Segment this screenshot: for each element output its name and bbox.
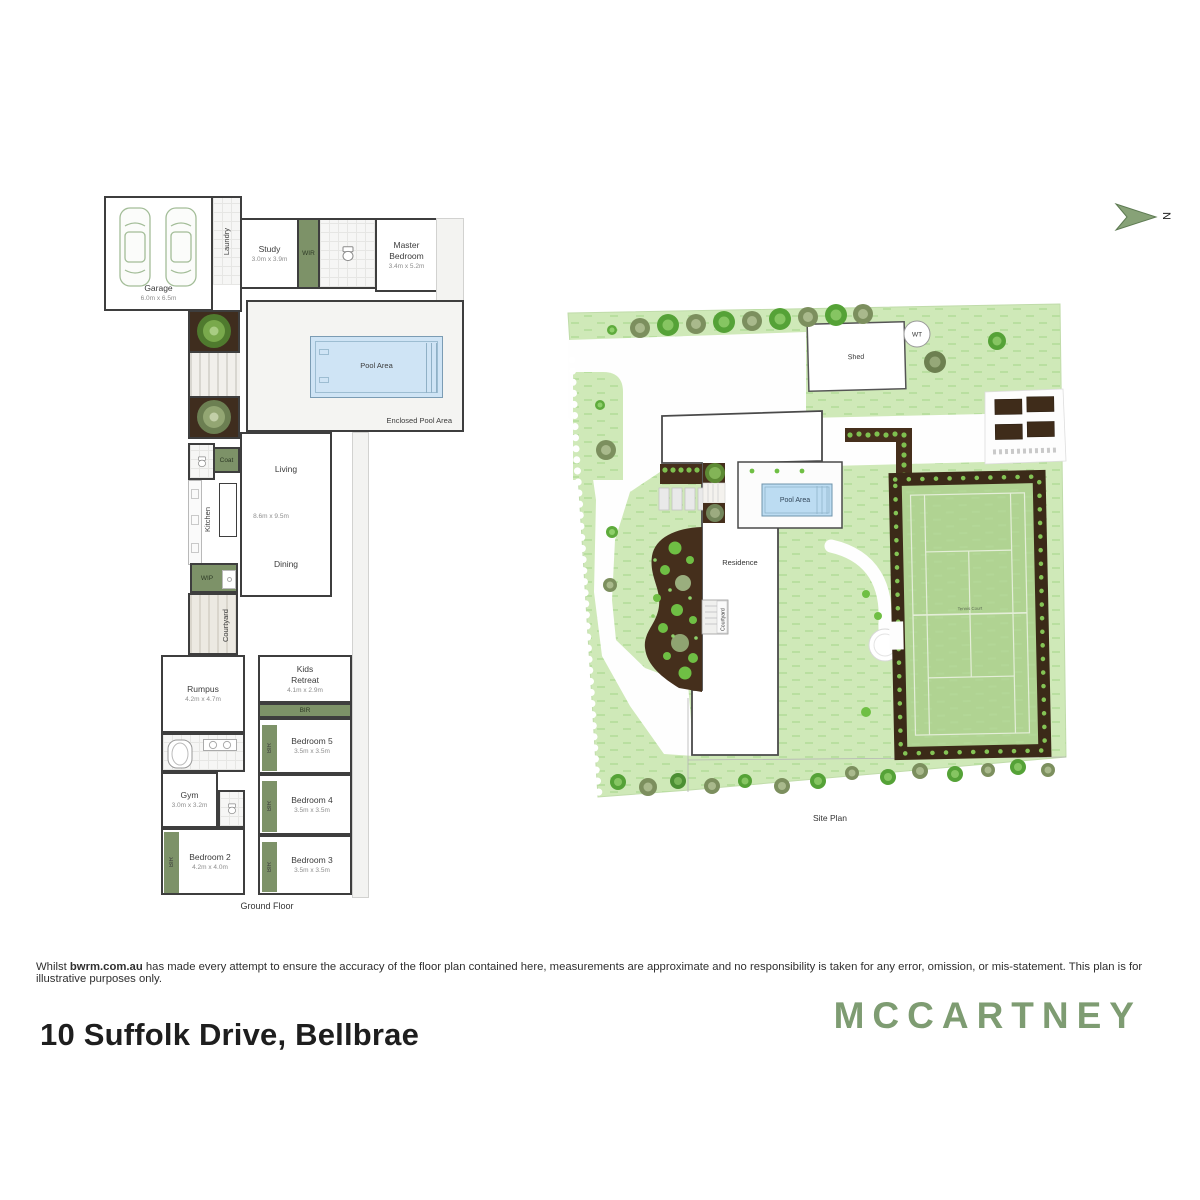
entry-steps <box>188 353 240 396</box>
entry-planter-bottom <box>188 396 240 439</box>
site-entry <box>703 463 725 523</box>
bathtub-icon <box>167 739 193 769</box>
agency-logo: MCCARTNEY <box>834 995 1142 1037</box>
room-garage: Garage 6.0m x 6.5m <box>104 196 213 311</box>
room-kids-retreat: Kids Retreat 4.1m x 2.9m <box>258 655 352 703</box>
coat-label: Coat <box>220 457 234 464</box>
bedroom3-label: Bedroom 3 <box>291 855 333 866</box>
enclosed-pool-label: Enclosed Pool Area <box>387 416 452 425</box>
garage-dims: 6.0m x 6.5m <box>106 295 211 303</box>
room-bedroom3: BIR Bedroom 3 3.5m x 3.5m <box>258 835 352 895</box>
rumpus-dims: 4.2m x 4.7m <box>185 696 221 704</box>
room-ensuite <box>318 218 377 289</box>
entrance-grass-corner <box>573 372 623 480</box>
north-indicator: N <box>1112 200 1182 244</box>
entry-planter-top <box>188 310 240 353</box>
north-label: N <box>1160 212 1172 220</box>
room-living-dining: Living 8.6m x 9.5m Dining <box>240 432 332 597</box>
living-label: Living <box>275 464 297 475</box>
gym-label: Gym <box>181 790 199 801</box>
room-study: Study 3.0m x 3.9m <box>240 218 299 289</box>
site-courtyard: Courtyard <box>702 600 728 634</box>
enclosed-pool-area: Pool Area Enclosed Pool Area <box>246 300 464 432</box>
bedroom2-bir: BIR <box>164 832 179 893</box>
svg-text:Shed: Shed <box>848 354 865 361</box>
room-bathroom <box>161 733 245 772</box>
bedroom5-label: Bedroom 5 <box>291 736 333 747</box>
hallway <box>211 285 242 312</box>
room-bedroom4: BIR Bedroom 4 3.5m x 3.5m <box>258 774 352 835</box>
svg-text:Courtyard: Courtyard <box>721 608 727 631</box>
room-coat: Coat <box>213 447 240 473</box>
vanity-icon <box>203 739 237 751</box>
shed: Shed <box>807 322 906 392</box>
bedroom3-bir: BIR <box>262 842 277 892</box>
room-master-bedroom: Master Bedroom 3.4m x 5.2m <box>375 218 438 292</box>
svg-text:Residence: Residence <box>722 558 757 567</box>
floor-plan: Garage 6.0m x 6.5m Laundry Study 3.0m x … <box>100 190 480 930</box>
north-arrow-icon <box>1112 200 1160 234</box>
toilet-icon <box>197 456 207 468</box>
bedroom3-dims: 3.5m x 3.5m <box>294 867 330 875</box>
bedroom2-dims: 4.2m x 4.0m <box>192 864 228 872</box>
bedroom4-dims: 3.5m x 3.5m <box>294 807 330 815</box>
study-dims: 3.0m x 3.9m <box>252 256 288 264</box>
kitchen-island <box>219 483 237 537</box>
room-rumpus: Rumpus 4.2m x 4.7m <box>161 655 245 733</box>
toilet-icon <box>341 246 355 262</box>
site-plan: Shed WT <box>555 298 1075 808</box>
plant-icon <box>190 398 238 437</box>
room-bedroom2: BIR Bedroom 2 4.2m x 4.0m <box>161 828 245 895</box>
master-bedroom-dims: 3.4m x 5.2m <box>389 263 425 271</box>
wip-label: WIP <box>201 575 213 582</box>
kitchen-bench <box>188 480 202 565</box>
page: Garage 6.0m x 6.5m Laundry Study 3.0m x … <box>0 0 1200 1200</box>
tennis-court: Tennis Court <box>886 477 1045 754</box>
garage-label: Garage <box>106 283 211 294</box>
site-plan-caption: Site Plan <box>730 813 930 823</box>
kitchen-label: Kitchen <box>203 488 212 550</box>
kids-retreat-bir: BIR <box>258 703 352 718</box>
study-label: Study <box>259 244 281 255</box>
wir-label: WIR <box>302 250 315 257</box>
floorplan-pool: Pool Area <box>310 336 443 398</box>
room-wc <box>218 790 245 828</box>
verandah-top <box>436 218 464 302</box>
ground-floor-caption: Ground Floor <box>167 901 367 911</box>
rumpus-label: Rumpus <box>187 684 219 695</box>
disclaimer-rest: has made every attempt to ensure the acc… <box>36 961 1142 985</box>
room-laundry: Laundry <box>211 196 242 287</box>
courtyard-label: Courtyard <box>221 600 230 652</box>
toilet-icon <box>227 803 237 815</box>
side-deck <box>352 432 369 898</box>
room-wip: WIP <box>190 563 238 593</box>
dining-label: Dining <box>274 559 298 570</box>
room-bedroom5: BIR Bedroom 5 3.5m x 3.5m <box>258 718 352 774</box>
water-tank: WT <box>904 321 930 347</box>
svg-text:WT: WT <box>912 332 922 339</box>
bedroom4-label: Bedroom 4 <box>291 795 333 806</box>
living-dims: 8.6m x 9.5m <box>253 513 289 521</box>
bedroom2-label: Bedroom 2 <box>189 852 231 863</box>
site-pool: Pool Area <box>738 462 842 528</box>
disclaimer-prefix: Whilst <box>36 961 70 973</box>
master-bedroom-label: Master Bedroom <box>383 240 431 262</box>
raised-garden-area <box>985 389 1066 464</box>
svg-text:Pool Area: Pool Area <box>780 497 810 504</box>
disclaimer: Whilst bwrm.com.au has made every attemp… <box>36 961 1166 985</box>
room-powder <box>188 443 215 480</box>
bedroom5-dims: 3.5m x 3.5m <box>294 748 330 756</box>
disclaimer-site: bwrm.com.au <box>70 961 143 973</box>
bedroom5-bir: BIR <box>262 725 277 771</box>
gym-dims: 3.0m x 3.2m <box>172 802 208 810</box>
property-address: 10 Suffolk Drive, Bellbrae <box>40 1017 419 1053</box>
car-icons <box>114 206 206 290</box>
pool-area-label: Pool Area <box>311 361 442 370</box>
room-wir: WIR <box>297 218 320 289</box>
room-gym: Gym 3.0m x 3.2m <box>161 772 218 828</box>
svg-text:Tennis Court: Tennis Court <box>957 606 983 612</box>
plant-icon <box>190 312 238 351</box>
courtyard-deck: Courtyard <box>188 593 238 655</box>
laundry-label: Laundry <box>222 228 231 255</box>
kids-retreat-dims: 4.1m x 2.9m <box>287 687 323 695</box>
kids-retreat-label: Kids Retreat <box>282 664 328 686</box>
bedroom4-bir: BIR <box>262 781 277 832</box>
